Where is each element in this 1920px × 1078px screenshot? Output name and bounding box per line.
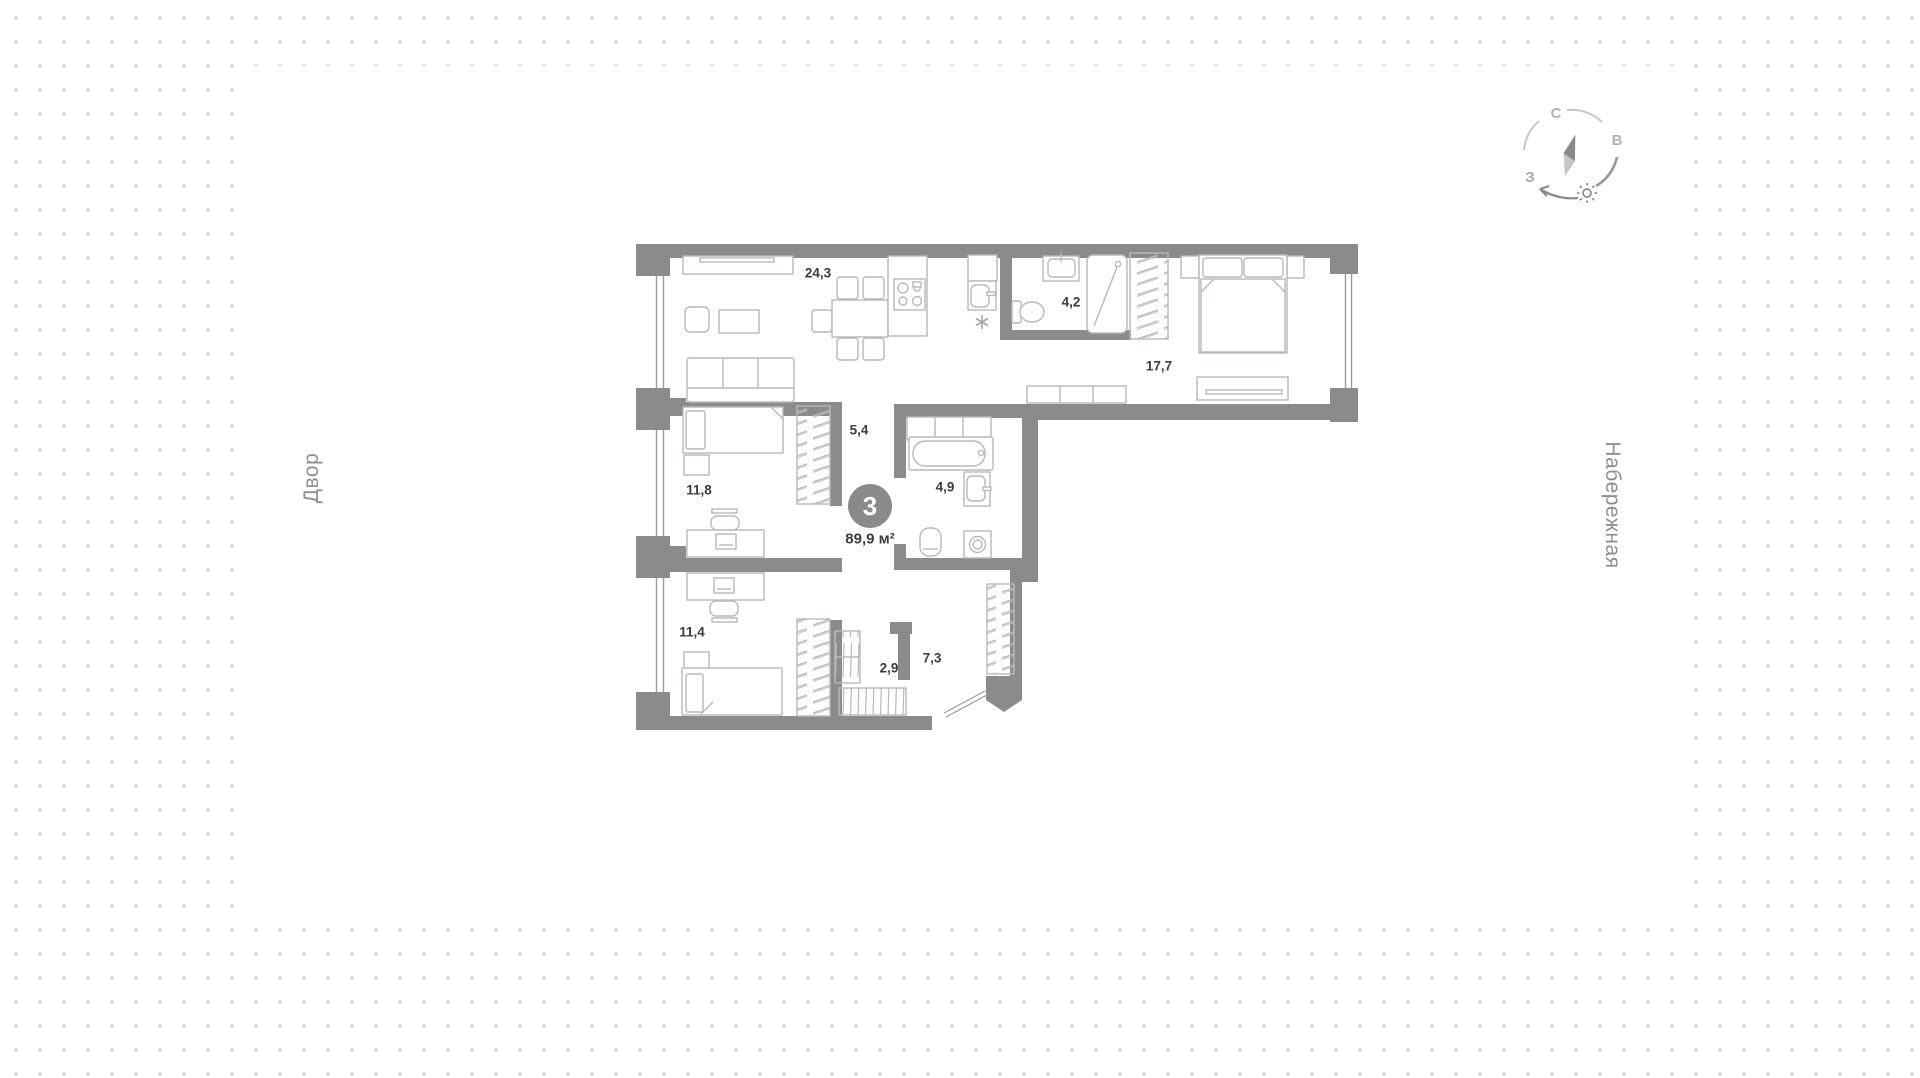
dresser: [1197, 377, 1288, 400]
tv-stand: [683, 256, 793, 274]
dining-table-set: [812, 277, 888, 360]
room-area-bedroom-master: 17,7: [1146, 359, 1172, 374]
entry-door: [944, 691, 987, 717]
wardrobe-rack: [797, 619, 830, 716]
armchair: [685, 307, 709, 332]
compass: С В З: [1524, 105, 1623, 203]
sunset-arrow-icon: [1540, 186, 1578, 198]
toilet: [920, 528, 941, 556]
washing-machine: [964, 531, 991, 558]
room-area-bathroom-small: 4,2: [1062, 295, 1081, 310]
street-label-embankment: Набережная: [1600, 441, 1624, 568]
sofa: [687, 358, 794, 402]
total-area-label: 89,9 м²: [845, 531, 894, 548]
low-cabinet: [1027, 386, 1126, 403]
coffee-table: [719, 310, 759, 333]
room-area-storage: 2,9: [880, 661, 899, 676]
bathroom-sink: [1043, 252, 1079, 281]
wardrobe-rack: [797, 406, 830, 504]
single-bed: [682, 668, 782, 715]
rooms-count-badge: 3: [848, 484, 892, 528]
compass-north-label: С: [1551, 105, 1562, 122]
shower-cabin: [1087, 255, 1127, 333]
sun-icon: [1577, 183, 1597, 203]
asterisk-mark-icon: [976, 315, 988, 329]
double-bed: [1199, 255, 1287, 353]
kitchen-counter: [888, 256, 927, 336]
bedside-table: [684, 455, 709, 475]
nightstand: [1181, 256, 1199, 278]
floor-plan: С В З: [0, 0, 1920, 1078]
room-area-bedroom-left: 11,8: [686, 483, 712, 498]
compass-east-label: В: [1612, 132, 1623, 149]
room-area-hallway-inner: 5,4: [850, 423, 869, 438]
street-label-yard: Двор: [300, 453, 324, 504]
compass-west-label: З: [1525, 169, 1534, 186]
room-area-bathroom-main: 4,9: [936, 480, 955, 495]
desk-with-chair: [687, 509, 764, 557]
furniture: [682, 252, 1304, 716]
wardrobe-rack: [987, 584, 1014, 674]
wardrobe-rack: [1130, 253, 1168, 339]
desk-with-chair: [687, 573, 764, 622]
compass-needle-icon: [1558, 133, 1581, 178]
single-bed: [683, 407, 783, 453]
bathroom-sink: [964, 472, 991, 506]
room-area-kitchen-living: 24,3: [805, 266, 831, 281]
nightstand: [1287, 256, 1304, 278]
bathtub: [909, 437, 993, 470]
kitchen-sink-unit: [968, 255, 997, 310]
toilet: [1012, 301, 1044, 323]
hob-icon: [894, 279, 925, 310]
room-area-hallway-entry: 7,3: [923, 651, 942, 666]
room-area-bedroom-bottom: 11,4: [679, 625, 705, 640]
